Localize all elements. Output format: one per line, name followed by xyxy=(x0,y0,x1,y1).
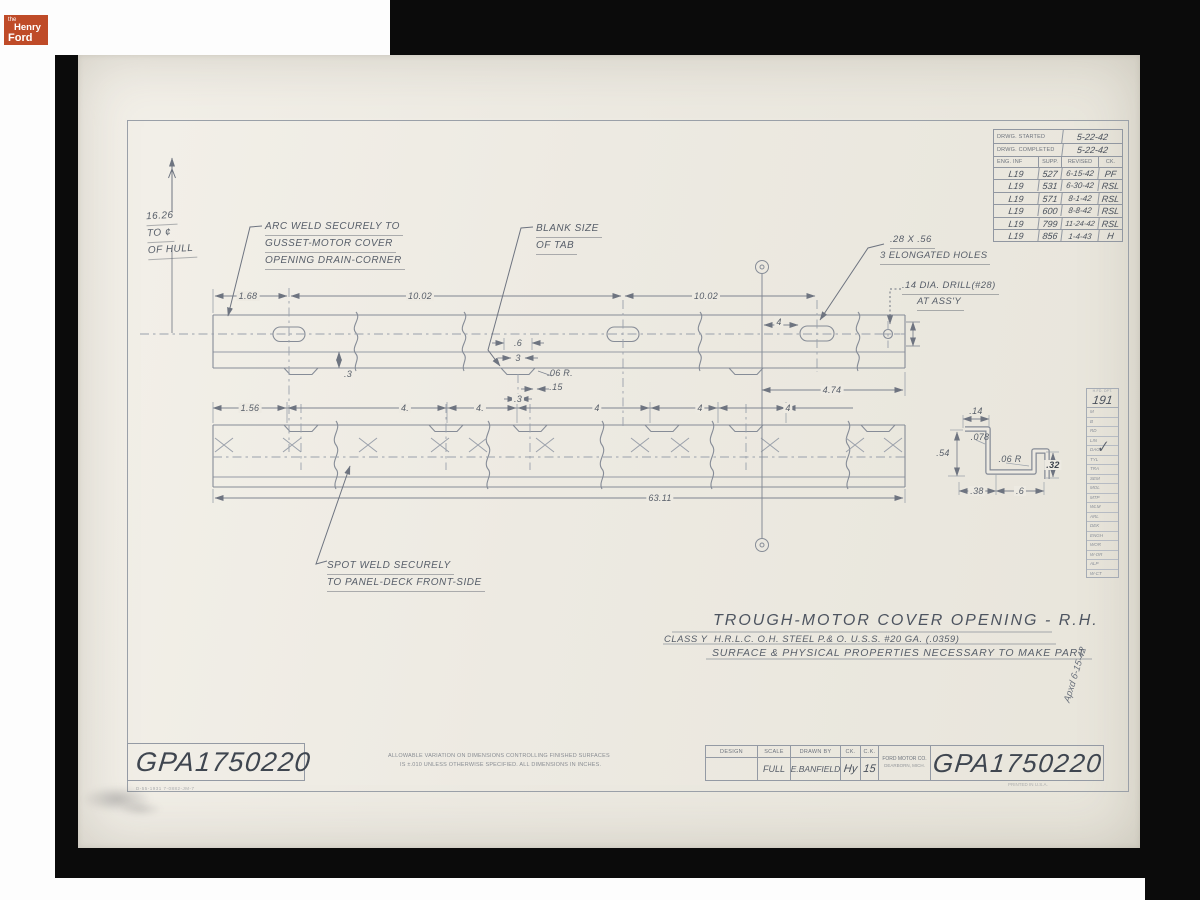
drawn-by-cell: DRAWN BY E.BANFIELD xyxy=(791,746,841,780)
dim-4-d: 4 xyxy=(695,403,704,413)
dim-4-a: 4. xyxy=(399,403,411,413)
dept-row: B xyxy=(1087,418,1118,428)
dept-row: W-OR xyxy=(1087,551,1118,561)
rev-ck: RSL xyxy=(1097,205,1122,216)
rev-date: 6-15-42 xyxy=(1060,168,1098,179)
revision-started-row: DRWG. STARTED 5-22-42 xyxy=(994,130,1122,144)
dept-row: WOR xyxy=(1087,541,1118,551)
dim-point15-tab: .15 xyxy=(549,382,562,392)
scan-margin-left xyxy=(0,0,55,900)
henry-ford-logo: the Henry Ford xyxy=(4,15,48,45)
rev-date: 6-30-42 xyxy=(1060,180,1098,191)
completed-label: DRWG. COMPLETED xyxy=(994,147,1062,153)
design-value xyxy=(706,758,757,780)
completed-value: 5-22-42 xyxy=(1061,144,1122,156)
dim-1-56: 1.56 xyxy=(239,403,262,413)
company-cell: FORD MOTOR CO. DEARBORN, MICH. xyxy=(879,746,931,780)
sec-dim-point6: .6 xyxy=(1014,486,1026,496)
dept-row: M xyxy=(1087,408,1118,418)
rev-eng: L19 xyxy=(993,193,1038,204)
drawing-number-right: GPA1750220 xyxy=(930,748,1104,779)
revision-row: L19 856 1-4-43 H xyxy=(994,230,1122,242)
dept-row: ARL xyxy=(1087,513,1118,523)
design-label: DESIGN xyxy=(706,746,757,758)
rev-eng: L19 xyxy=(993,180,1038,191)
sec-dim-06r: .06 R xyxy=(998,454,1021,464)
scale-cell: SCALE FULL xyxy=(758,746,791,780)
ck-cell: CK. Hy xyxy=(841,746,861,780)
dept-row: TYL xyxy=(1087,456,1118,466)
rev-date: 1-4-43 xyxy=(1060,230,1099,242)
dept-row: MTP xyxy=(1087,494,1118,504)
logo-ford: Ford xyxy=(8,33,48,44)
design-cell: DESIGN xyxy=(706,746,758,780)
allowable-note-line1: ALLOWABLE VARIATION ON DIMENSIONS CONTRO… xyxy=(388,753,610,759)
revision-header-row: ENG. INF SUPP. REVISED CK. xyxy=(994,157,1122,168)
rev-ck: RSL xyxy=(1097,193,1122,204)
dept-row: DEK xyxy=(1087,522,1118,532)
dept-row: RD xyxy=(1087,427,1118,437)
hull-note-line3: OF HULL xyxy=(147,241,196,261)
scan-margin-bottom xyxy=(0,878,1145,900)
arc-weld-note: ARC WELD SECURELY TO GUSSET-MOTOR COVER … xyxy=(265,219,405,270)
rev-ck: PF xyxy=(1097,168,1122,179)
drawing-number-box-right: GPA1750220 xyxy=(931,746,1103,780)
sec-dim-point38: .38 xyxy=(968,486,985,496)
dim-10-02-a: 10.02 xyxy=(406,291,434,301)
started-label: DRWG. STARTED xyxy=(994,134,1062,140)
dim-4-74: 4.74 xyxy=(821,385,844,395)
dim-point3-flange: .3 xyxy=(344,369,352,379)
dim-point6-tab: .6 xyxy=(512,338,524,348)
rev-eng: L19 xyxy=(993,205,1038,216)
allowable-note-line2: IS ±.010 UNLESS OTHERWISE SPECIFIED. ALL… xyxy=(400,762,601,768)
elongated-holes-note: .28 X .56 3 ELONGATED HOLES xyxy=(880,233,990,265)
revision-row: L19 600 8-8-42 RSL xyxy=(994,205,1122,217)
revision-table: DRWG. STARTED 5-22-42 DRWG. COMPLETED 5-… xyxy=(993,129,1123,242)
dim-4-c: 4 xyxy=(592,403,601,413)
rev-supp: 600 xyxy=(1037,205,1061,216)
spot-weld-note: SPOT WELD SECURELY TO PANEL-DECK FRONT-S… xyxy=(327,558,485,592)
dim-4-e: 4 xyxy=(783,403,792,413)
rev-supp: 856 xyxy=(1037,230,1062,242)
rev-date: 8-8-42 xyxy=(1060,205,1098,216)
rev-ck: H xyxy=(1097,230,1123,242)
drawing-number-left: GPA1750220 xyxy=(126,747,312,778)
scanned-drawing-page: the Henry Ford xyxy=(0,0,1200,900)
department-table: H.FD. DPT. 191 M B RD LIN DAG TYL TRA SE… xyxy=(1086,388,1119,578)
dept-row: ALP xyxy=(1087,560,1118,570)
printed-usa-note: PRINTED IN U.S.A. xyxy=(1008,782,1048,787)
hull-note-line1: 16.26 xyxy=(146,208,177,227)
title-block: DESIGN SCALE FULL DRAWN BY E.BANFIELD CK… xyxy=(705,745,1104,781)
rev-supp: 527 xyxy=(1037,168,1061,179)
company-city: DEARBORN, MICH. xyxy=(884,763,925,769)
drawn-by-value: E.BANFIELD xyxy=(791,758,840,780)
company-name: FORD MOTOR CO. xyxy=(882,756,926,763)
hull-dimension-note: 16.26 TO ¢ OF HULL xyxy=(146,207,197,260)
drill-note: .14 DIA. DRILL(#28) AT ASS'Y xyxy=(902,279,999,311)
rev-eng: L19 xyxy=(993,218,1038,229)
dim-4-small: 4 xyxy=(774,317,783,327)
class-label: CLASS Y xyxy=(664,634,707,645)
drawing-number-box-left: GPA1750220 xyxy=(127,743,305,781)
started-value: 5-22-42 xyxy=(1061,130,1123,143)
sec-dim-078: .078 xyxy=(971,432,990,442)
rev-supp: 571 xyxy=(1037,193,1061,204)
company-info: FORD MOTOR CO. DEARBORN, MICH. xyxy=(879,746,930,780)
dept-row: WLM xyxy=(1087,503,1118,513)
dim-06r-tab: .06 R. xyxy=(547,368,573,378)
dim-point3-tab: .3 xyxy=(512,394,524,404)
dim-10-02-b: 10.02 xyxy=(692,291,720,301)
rev-eng: L19 xyxy=(993,230,1039,242)
dim-63-11: 63.11 xyxy=(646,493,673,503)
rev-ck: RSL xyxy=(1097,180,1122,191)
revision-row: L19 531 6-30-42 RSL xyxy=(994,180,1122,192)
rev-date: 11-24-42 xyxy=(1060,218,1098,229)
blank-size-line1: BLANK SIZE xyxy=(536,221,602,238)
part-title: TROUGH-MOTOR COVER OPENING - R.H. xyxy=(713,612,1099,630)
hull-note-line2: TO ¢ xyxy=(147,225,175,243)
col-revised: REVISED xyxy=(1061,157,1098,167)
dept-row: ENGH xyxy=(1087,532,1118,542)
spot-weld-line2: TO PANEL-DECK FRONT-SIDE xyxy=(327,575,485,592)
dept-row: MOL xyxy=(1087,484,1118,494)
dept-number: 191 xyxy=(1086,393,1119,407)
revision-row: L19 571 8-1-42 RSL xyxy=(994,193,1122,205)
department-header: H.FD. DPT. 191 xyxy=(1087,389,1118,408)
revision-row: L19 799 11-24-42 RSL xyxy=(994,218,1122,230)
ck2-cell: C.K. 15 xyxy=(861,746,879,780)
holes-line1: .28 X .56 xyxy=(890,233,935,249)
drill-line2: AT ASS'Y xyxy=(917,295,964,311)
pencil-smudge xyxy=(118,802,162,816)
scale-label: SCALE xyxy=(758,746,790,758)
rev-eng: L19 xyxy=(993,168,1038,179)
revision-completed-row: DRWG. COMPLETED 5-22-42 xyxy=(994,144,1122,157)
blank-size-line2: OF TAB xyxy=(536,238,577,255)
ck-value: Hy xyxy=(840,758,862,780)
material-spec: H.R.L.C. O.H. STEEL P.& O. U.S.S. #20 GA… xyxy=(714,634,959,645)
dept-row: W-CT xyxy=(1087,570,1118,579)
rev-date: 8-1-42 xyxy=(1060,193,1098,204)
sec-dim-point14: .14 xyxy=(969,406,982,416)
col-supp: SUPP. xyxy=(1038,157,1061,167)
sec-dim-point32: .32 xyxy=(1044,460,1061,470)
spot-weld-line1: SPOT WELD SECURELY xyxy=(327,558,454,575)
col-eng-inf: ENG. INF xyxy=(994,159,1038,165)
scale-value: FULL xyxy=(758,758,790,780)
arc-weld-line3: OPENING DRAIN-CORNER xyxy=(265,253,405,270)
dim-3-tab: 3 xyxy=(513,353,522,363)
col-ck: CK. xyxy=(1098,157,1122,167)
drawn-by-label: DRAWN BY xyxy=(791,746,840,758)
surface-note: SURFACE & PHYSICAL PROPERTIES NECESSARY … xyxy=(712,647,1085,659)
dept-row: TRA xyxy=(1087,465,1118,475)
ck2-label: C.K. xyxy=(861,746,878,758)
rev-ck: RSL xyxy=(1097,218,1122,229)
drill-line1: .14 DIA. DRILL(#28) xyxy=(902,279,999,295)
dim-4-b: 4. xyxy=(474,403,486,413)
rev-supp: 799 xyxy=(1037,218,1061,229)
dim-1-68: 1.68 xyxy=(237,291,260,301)
sec-dim-point54: .54 xyxy=(936,448,949,458)
arc-weld-line1: ARC WELD SECURELY TO xyxy=(265,219,403,236)
rev-supp: 531 xyxy=(1037,180,1061,191)
holes-line2: 3 ELONGATED HOLES xyxy=(880,249,990,265)
blank-size-note: BLANK SIZE OF TAB xyxy=(536,221,602,255)
dept-row: SEM xyxy=(1087,475,1118,485)
arc-weld-line2: GUSSET-MOTOR COVER xyxy=(265,236,396,253)
ck-label: CK. xyxy=(841,746,860,758)
ck2-value: 15 xyxy=(860,758,880,780)
revision-row: L19 527 6-15-42 PF xyxy=(994,168,1122,180)
scan-margin-top xyxy=(0,0,390,55)
